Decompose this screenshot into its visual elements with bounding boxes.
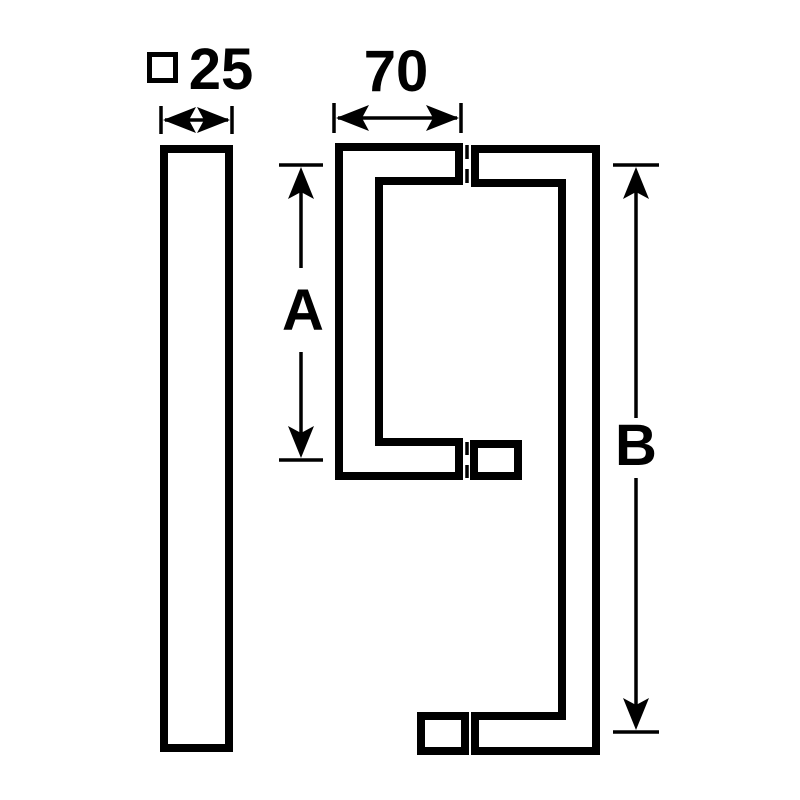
centers-a-label: A [282, 278, 324, 343]
grip-width-label: 70 [364, 39, 429, 104]
handle-technical-drawing: 25 70 [0, 0, 800, 800]
dim-centers-a: A [279, 165, 324, 460]
front-view-bar [164, 149, 229, 748]
side-view [339, 145, 596, 753]
front-view [164, 149, 229, 748]
short-handle-mount-pad [474, 444, 518, 476]
dim-profile-25: 25 [150, 37, 254, 134]
square-profile-icon [150, 55, 176, 81]
drawing-canvas: 25 70 [0, 0, 800, 800]
dim-grip-70: 70 [334, 39, 461, 133]
centers-b-label: B [615, 413, 657, 478]
short-handle-outline [339, 147, 459, 476]
tall-handle-mount-pad [421, 716, 465, 751]
profile-size-label: 25 [189, 37, 254, 102]
dim-centers-b: B [613, 165, 659, 732]
